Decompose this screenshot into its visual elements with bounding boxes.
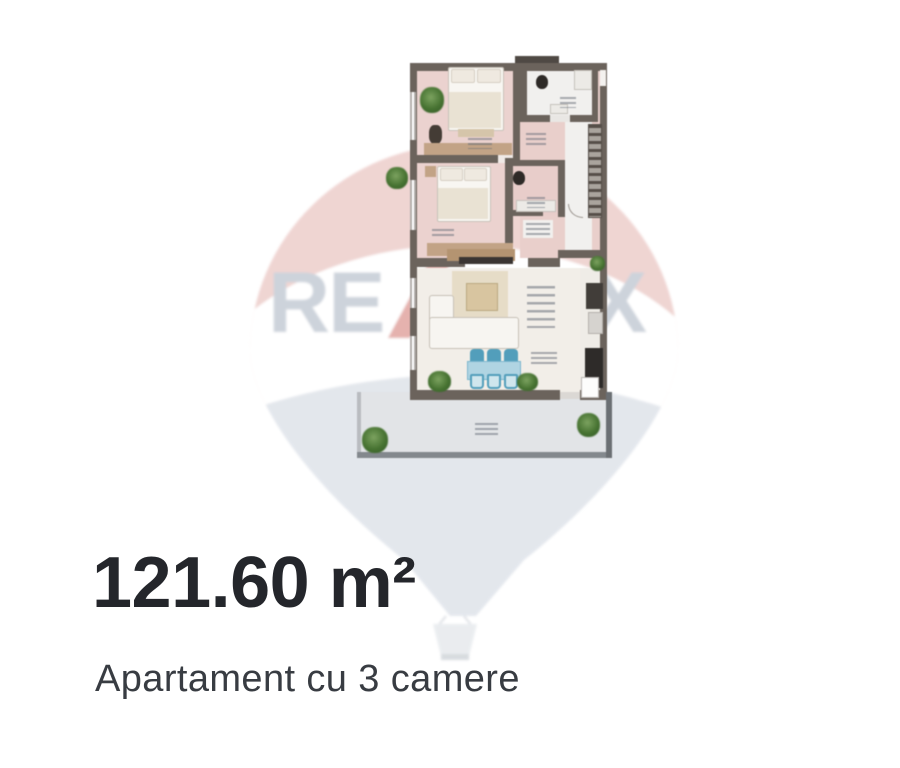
terrace-wall-left [357,392,361,456]
apartment-title: Apartament cu 3 camere [95,660,520,698]
room-label [560,97,576,108]
entry-door-gap [600,70,606,86]
terrace-door-leaf [581,377,599,398]
pillow [451,69,475,83]
terrace-wall-right [606,392,612,458]
plant-icon [420,87,444,113]
tv [459,257,513,264]
room-label [468,138,492,149]
plant-icon [362,427,388,453]
room-label [527,197,545,208]
toilet-icon [513,171,525,185]
window-living-2 [410,336,416,370]
window-living-1 [410,278,416,308]
kitchen-counter [586,283,603,309]
room-label [526,223,550,235]
terrace-door-gap [560,392,580,399]
wall-bedroom-1-right [513,66,520,163]
plant-icon [517,373,538,391]
dining-chair [487,374,501,389]
wall-bottom-left [410,390,560,400]
wall-top-bump [515,56,559,63]
wardrobe [588,124,602,218]
sofa-base [429,317,519,349]
room-label [527,286,555,328]
room-label [432,229,454,239]
blanket [438,188,488,219]
wall-bathroom-2-right [558,160,565,217]
dining-chair [504,374,518,389]
area-value: 121.60 m² [92,547,416,619]
door-gap-bathroom-1 [550,115,570,122]
dining-chair [470,374,484,389]
plant-icon [577,413,600,437]
room-label [526,133,546,145]
window-bedroom-1 [410,92,416,140]
wall-bed2-living-right [528,258,560,267]
pillow [440,168,463,181]
plant-icon [590,256,605,271]
floor-lamp [429,125,442,144]
room-label [531,352,557,365]
plant-icon [428,371,451,392]
plant-icon [386,167,408,189]
listing-image: RE MAX [0,0,900,768]
pillow [464,168,487,181]
kitchen-appliance [588,312,603,334]
floor-plan [0,0,900,768]
window-bedroom-2 [410,180,416,230]
blanket [449,92,501,128]
bed-bench [458,129,494,137]
pillow [477,69,501,83]
wall-bathroom-1-right [592,66,598,122]
wall-bathroom-1-left [520,66,527,122]
nightstand [425,166,436,177]
coffee-table [466,283,498,311]
terrace-wall-bottom [357,452,612,458]
room-label [475,423,498,436]
toilet-icon [536,75,548,89]
shower [574,70,592,90]
